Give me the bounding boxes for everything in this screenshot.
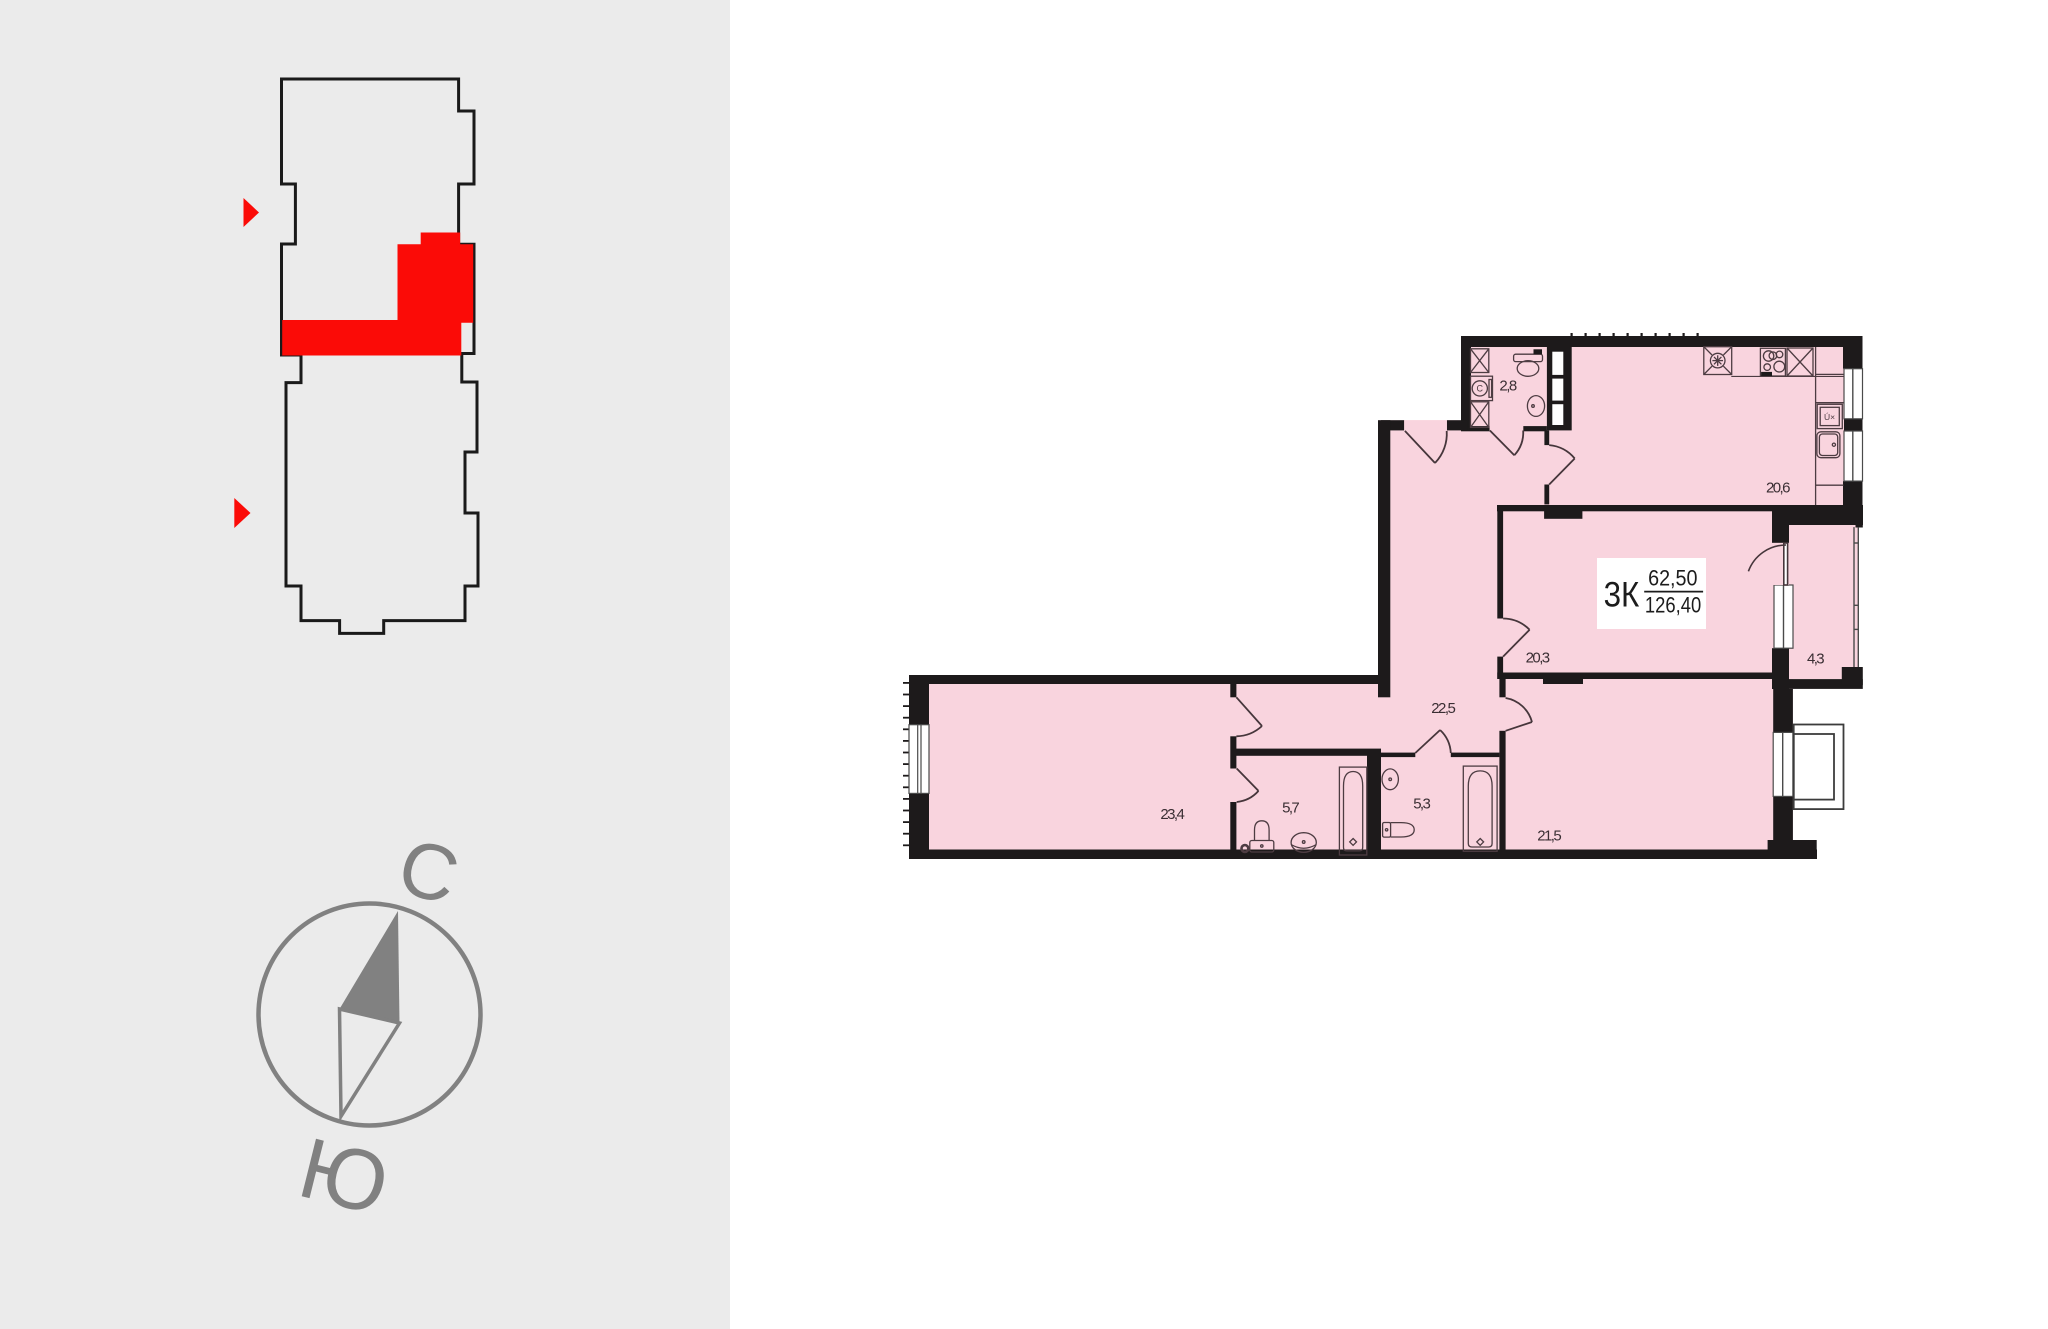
svg-text:Ú×: Ú× [1824,412,1835,422]
svg-text:23,4: 23,4 [1160,806,1185,823]
svg-text:5,3: 5,3 [1413,795,1431,812]
svg-text:20,3: 20,3 [1526,650,1551,667]
svg-text:2,8: 2,8 [1499,378,1517,395]
svg-text:22,5: 22,5 [1431,700,1456,717]
svg-text:С: С [1477,384,1484,394]
svg-text:20,6: 20,6 [1766,480,1791,497]
svg-text:62,50: 62,50 [1648,565,1697,590]
svg-text:4,3: 4,3 [1807,650,1825,667]
svg-text:21,5: 21,5 [1537,828,1562,845]
svg-text:126,40: 126,40 [1645,592,1701,617]
svg-text:3К: 3К [1604,576,1640,615]
svg-text:5,7: 5,7 [1282,800,1300,817]
